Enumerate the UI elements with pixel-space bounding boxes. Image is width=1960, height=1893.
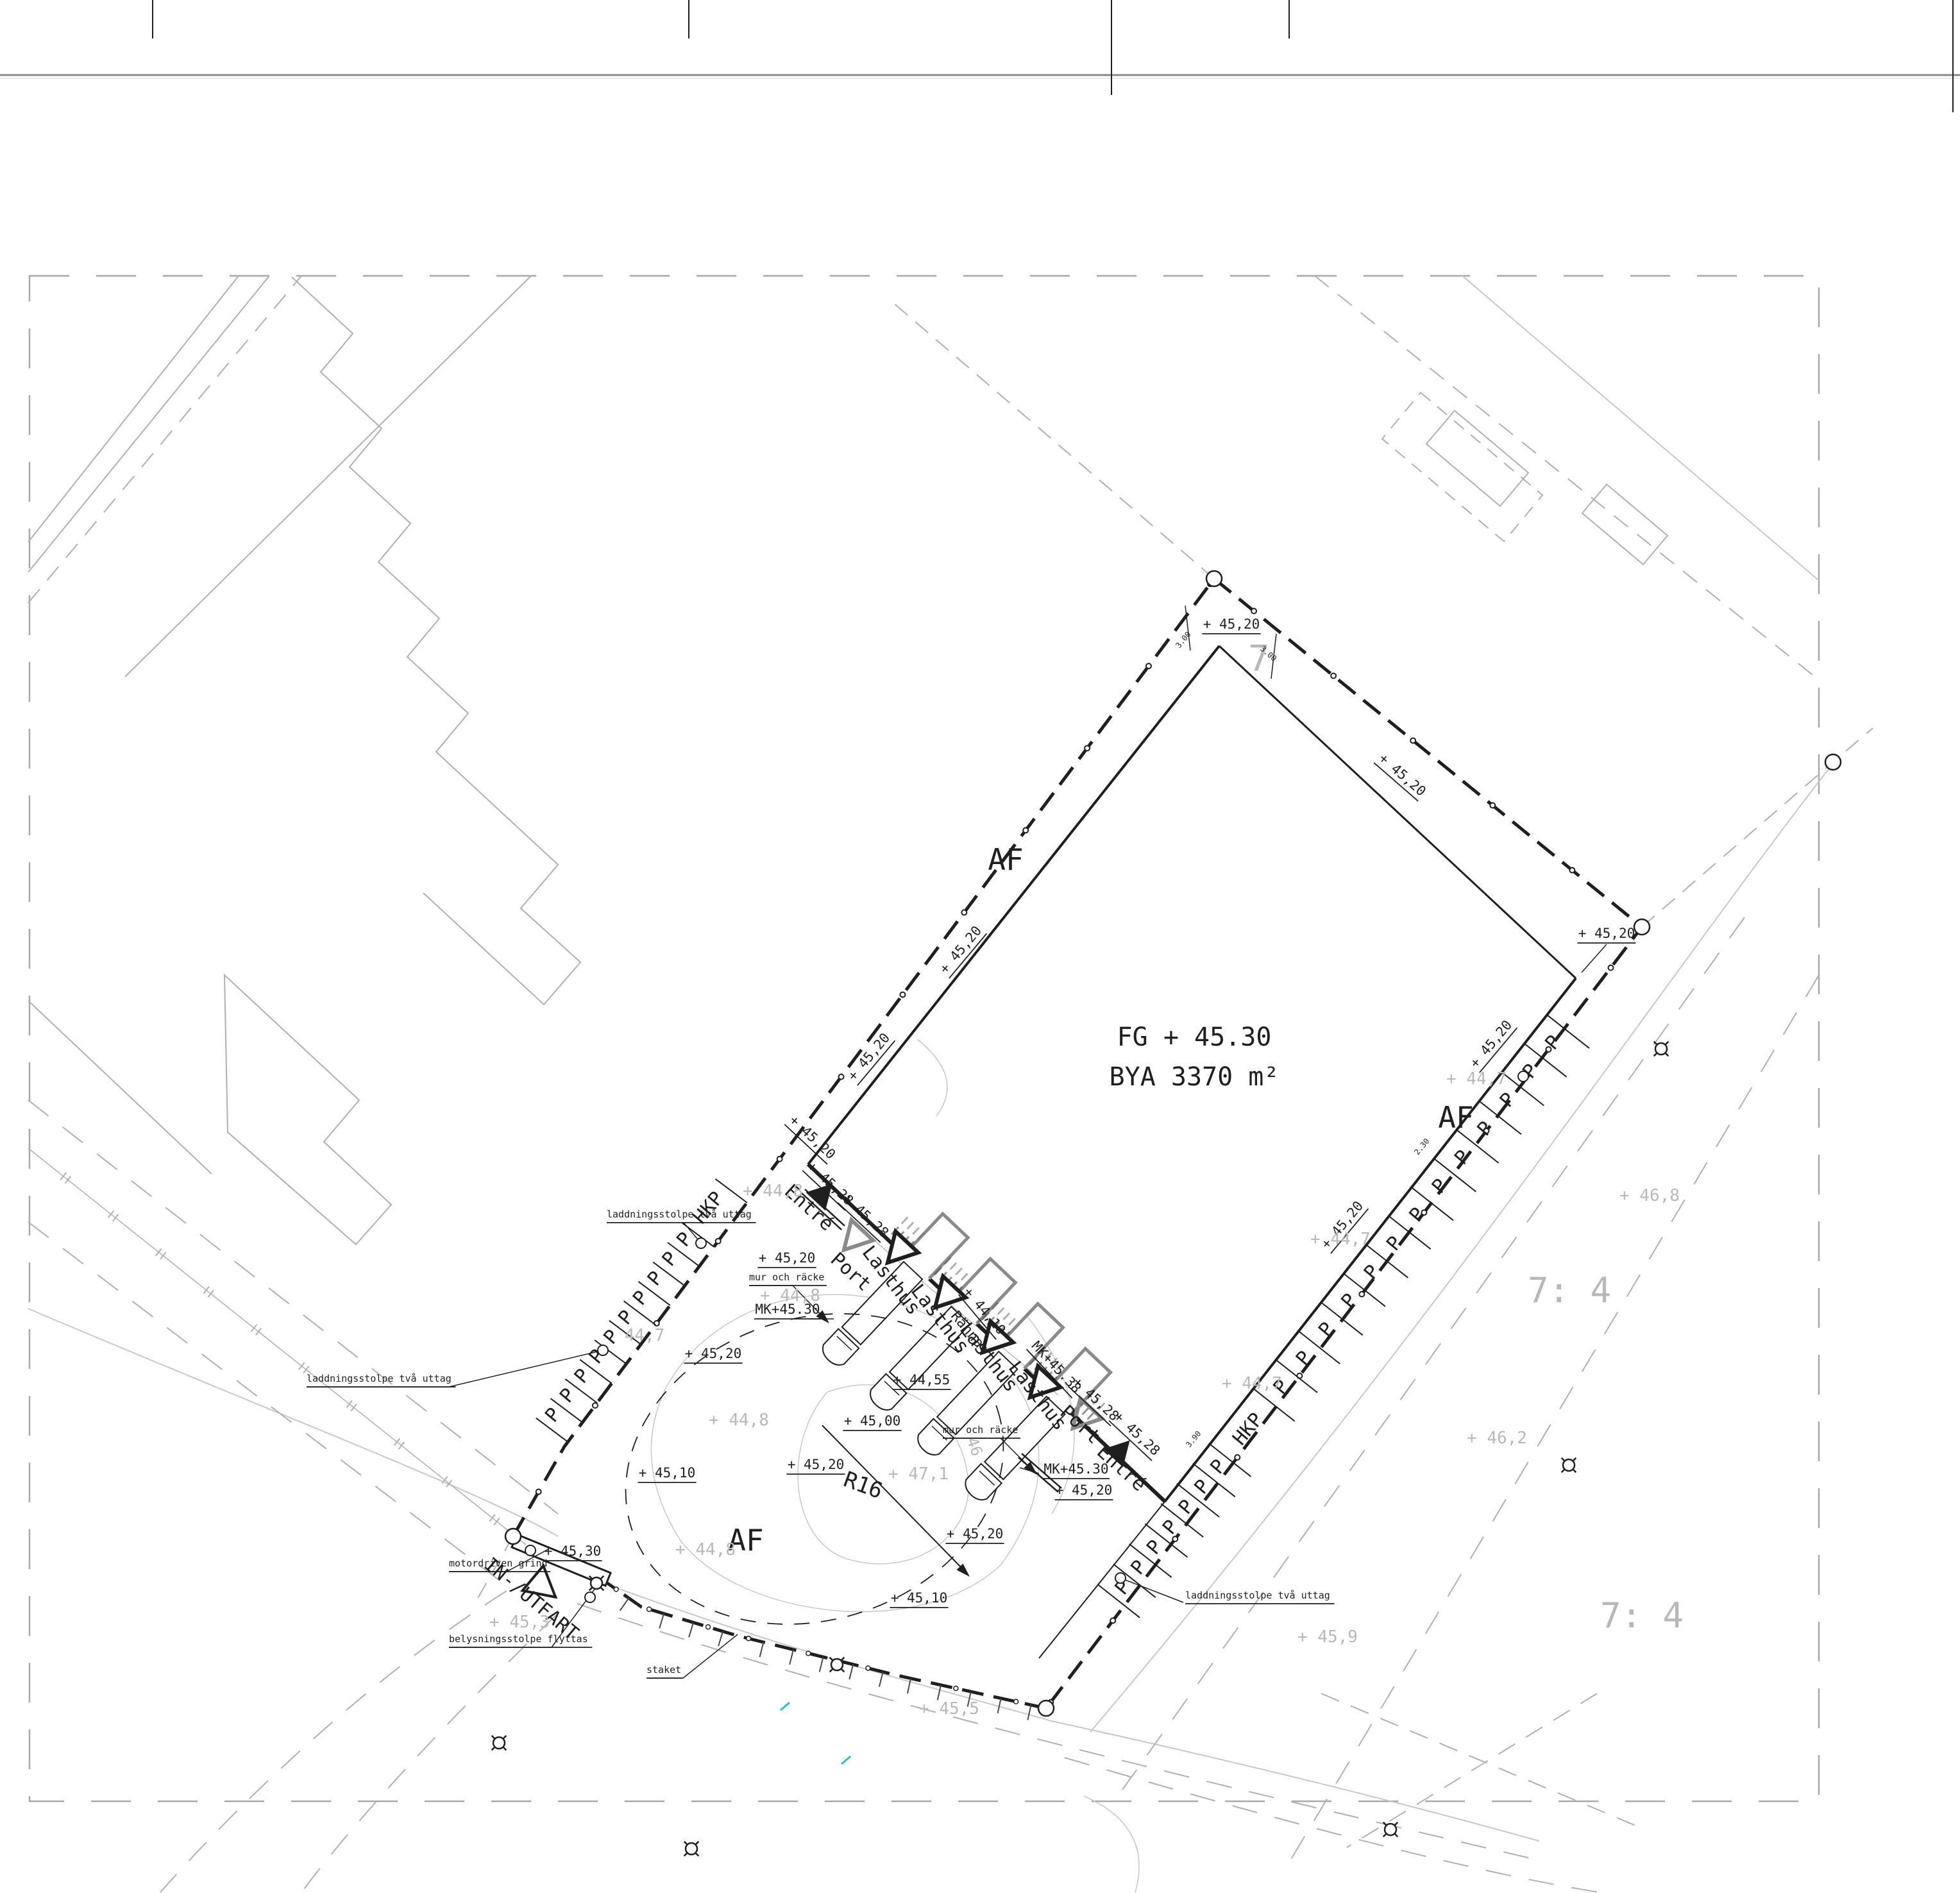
ground-45-5: + 45,5 bbox=[919, 1699, 979, 1719]
spot-45-20-s1: + 45,20 bbox=[1056, 1482, 1113, 1498]
ground-44-7-c: + 44,7 bbox=[1222, 1374, 1282, 1393]
boundary-ext-nw bbox=[890, 300, 1214, 579]
af-label-nw: AF bbox=[988, 842, 1023, 877]
survey-corner-circle bbox=[1206, 571, 1222, 586]
r16-label: R16 bbox=[840, 1466, 886, 1504]
boundary-post bbox=[1608, 965, 1613, 971]
survey-corner-circle bbox=[1634, 919, 1650, 935]
lamp-tick bbox=[600, 1576, 604, 1579]
bg-road-nw-2 bbox=[28, 276, 239, 542]
spot-45-20-w2-group: + 45,20 bbox=[684, 1346, 742, 1363]
lamp-tick bbox=[841, 1658, 844, 1661]
lamp-tick bbox=[1394, 1822, 1398, 1826]
spot-45-20-neb-group: + 45,20 bbox=[1374, 750, 1429, 801]
parking-right-slot-p: P bbox=[1142, 1536, 1167, 1559]
road-dash-2 bbox=[28, 1222, 513, 1591]
boundary-post bbox=[1146, 663, 1151, 668]
ground-44-8-c: + 44,8 bbox=[709, 1411, 769, 1430]
spot-45-00-group: + 45,00 bbox=[843, 1413, 901, 1430]
lamp-tick bbox=[492, 1736, 495, 1739]
bg-road-nw-dash bbox=[28, 276, 301, 603]
lamp-post-symbol bbox=[492, 1736, 507, 1751]
spot-45-20-e: + 45,20 bbox=[1578, 926, 1635, 941]
spot-45-20-n-group: + 45,20 bbox=[1202, 616, 1260, 634]
lamp-tick bbox=[1573, 1469, 1576, 1472]
lamp-tick bbox=[1383, 1822, 1387, 1826]
lamp-post-symbol bbox=[1562, 1458, 1576, 1473]
road-edge-sw-2 bbox=[616, 1588, 1052, 1721]
spot-45-20-e-group: + 45,20 bbox=[1577, 926, 1635, 943]
road-tick bbox=[203, 1287, 209, 1294]
road-tick bbox=[494, 1518, 500, 1525]
bg-road-nw-1 bbox=[28, 276, 269, 572]
spot-45-20-neb: + 45,20 bbox=[1376, 751, 1429, 799]
ground-45-9-group: + 45,9 bbox=[1297, 1627, 1358, 1647]
lamp-tick bbox=[684, 1842, 688, 1845]
survey-point-circle bbox=[585, 1592, 595, 1602]
fence-post bbox=[706, 1625, 711, 1629]
boundary-post bbox=[1490, 803, 1495, 808]
bg-dash-x1 bbox=[1321, 1694, 1642, 1828]
fence-tick bbox=[689, 1622, 693, 1637]
bg-building-lower bbox=[224, 975, 391, 1244]
fence-tick bbox=[659, 1614, 664, 1629]
road-tick bbox=[160, 1252, 166, 1259]
lamp-tick bbox=[841, 1668, 844, 1672]
ground-44-7-b: + 44,7 bbox=[1310, 1230, 1371, 1249]
survey-corner-circle bbox=[1825, 754, 1841, 770]
parking-right-slot-p: P bbox=[1450, 1146, 1474, 1169]
road-dash-1 bbox=[28, 1100, 558, 1514]
note-belysning: belysningsstolpe flyttas bbox=[449, 1633, 588, 1645]
lamp-circle bbox=[831, 1659, 843, 1670]
dim-2-30-group: 2.30 bbox=[1412, 1137, 1431, 1157]
lamp-circle bbox=[1563, 1459, 1575, 1471]
ground-46-8-group: + 46,8 bbox=[1619, 1186, 1680, 1205]
parcel-7-group: 7 bbox=[1248, 638, 1270, 680]
fence-post bbox=[806, 1651, 811, 1656]
contour-5 bbox=[1084, 1796, 1139, 1892]
lamp-post-symbol bbox=[1654, 1042, 1669, 1057]
lamp-tick bbox=[1562, 1458, 1565, 1461]
parking-right-slot-p: P bbox=[1206, 1456, 1230, 1479]
spot-45-20-seb: + 45,20 bbox=[1467, 1017, 1515, 1071]
spot-45-10-b-group: + 45,10 bbox=[890, 1590, 948, 1608]
parking-right-slot-p: P bbox=[1314, 1318, 1339, 1341]
road-dash-4 bbox=[301, 1613, 558, 1892]
parcel-7-4-a-group: 7: 4 bbox=[1528, 1270, 1611, 1311]
boundary-post bbox=[1023, 828, 1028, 833]
ground-44-7-d: + 44,7 bbox=[1446, 1069, 1507, 1089]
bg-line-ne bbox=[1462, 276, 1819, 581]
parking-right-slot-p: P bbox=[1292, 1346, 1316, 1370]
ground-44-7-a: 44,7 bbox=[625, 1326, 665, 1345]
dim-3-90-group: 3.90 bbox=[1184, 1429, 1203, 1449]
bg-line-left bbox=[28, 1001, 212, 1174]
af-label-se: AF bbox=[1438, 1100, 1473, 1135]
cyan-mark bbox=[781, 1702, 790, 1710]
spot-45-20-n: + 45,20 bbox=[1203, 616, 1260, 632]
mk-level-right: MK+45.30 bbox=[1043, 1461, 1108, 1477]
road-tick bbox=[299, 1362, 305, 1370]
dim-n-left bbox=[1185, 606, 1190, 650]
dock-hatch-2 bbox=[904, 1219, 922, 1235]
boundary-post bbox=[777, 1157, 782, 1162]
ground-46-2-group: + 46,2 bbox=[1467, 1429, 1527, 1448]
fence-tick bbox=[879, 1672, 883, 1686]
road-tick bbox=[489, 1515, 495, 1522]
spot-45-20-s1-group: + 45,20 bbox=[1054, 1482, 1113, 1500]
site-plan-sheet: HKPPPPPPPPPPPPPPPPPPPPPPPPHKPPPPPPPPFG +… bbox=[0, 0, 1960, 1893]
spot-45-20-s2-group: + 45,20 bbox=[945, 1526, 1004, 1543]
dock-ramp-1 bbox=[888, 1232, 918, 1263]
boundary-post bbox=[1085, 745, 1090, 751]
boundary-post bbox=[1110, 1618, 1115, 1623]
bg-building-stepped bbox=[292, 277, 580, 1005]
fence-tick bbox=[849, 1665, 853, 1679]
site-plan-drawing: HKPPPPPPPPPPPPPPPPPPPPPPPPHKPPPPPPPPFG +… bbox=[0, 0, 1960, 1893]
note-grind: motordriven grind bbox=[449, 1558, 548, 1569]
dim-3-90: 3.90 bbox=[1184, 1429, 1203, 1449]
building-bya-area-group: BYA 3370 m² bbox=[1110, 1062, 1280, 1092]
note-staket-group: staket bbox=[646, 1664, 682, 1678]
boundary-post bbox=[1359, 1291, 1364, 1296]
lamp-tick bbox=[1654, 1053, 1657, 1056]
survey-point-circle bbox=[1518, 1071, 1528, 1082]
lamp-tick bbox=[492, 1747, 495, 1750]
bg-rect-ne-1 bbox=[1426, 411, 1528, 506]
af-label-nw-group: AF bbox=[988, 842, 1023, 877]
fence-tick bbox=[620, 1598, 629, 1611]
fence-post bbox=[614, 1587, 618, 1592]
road-tick bbox=[399, 1442, 405, 1449]
parcel-7-4-b: 7: 4 bbox=[1600, 1595, 1684, 1636]
spot-45-20-w1-group: + 45,20 bbox=[757, 1250, 816, 1268]
lamp-tick bbox=[830, 1668, 833, 1672]
fence-tick bbox=[790, 1650, 793, 1665]
boundary-post bbox=[900, 992, 905, 997]
fence-post bbox=[954, 1686, 958, 1690]
note-belysning-group: belysningsstolpe flyttas bbox=[449, 1633, 592, 1647]
spot-45-10-a-group: + 45,10 bbox=[638, 1465, 696, 1482]
road-tick bbox=[65, 1176, 71, 1184]
contour-4 bbox=[917, 1039, 947, 1116]
spot-45-10-b: + 45,10 bbox=[891, 1590, 948, 1606]
parking-right-slot-p: P bbox=[1360, 1261, 1384, 1284]
ground-44-8-a-group: + 44,8 bbox=[743, 1182, 803, 1201]
road-edge-sw-1 bbox=[28, 1309, 558, 1536]
road-tick bbox=[351, 1404, 357, 1411]
lamp-circle bbox=[591, 1577, 602, 1589]
spot-45-00: + 45,00 bbox=[844, 1413, 901, 1429]
boundary-post bbox=[1410, 738, 1415, 743]
fence-post bbox=[647, 1607, 652, 1611]
ground-44-7-d-group: + 44,7 bbox=[1446, 1069, 1507, 1089]
road-dash-se-2 bbox=[1283, 975, 1819, 1873]
fence-tick bbox=[718, 1631, 723, 1646]
road-edge-se-1 bbox=[1090, 763, 1833, 1732]
road-tick bbox=[156, 1248, 162, 1255]
spot-45-10-a: + 45,10 bbox=[639, 1465, 696, 1481]
spot-45-20-s2: + 45,20 bbox=[947, 1526, 1004, 1541]
r16-label-group: R16 bbox=[840, 1466, 886, 1504]
spot-45-20-w1: + 45,20 bbox=[759, 1250, 816, 1266]
ground-44-8-b-group: + 44,8 bbox=[760, 1286, 820, 1305]
note-laddning-1: laddningsstolpe två uttag bbox=[607, 1209, 752, 1220]
fence-post bbox=[1014, 1699, 1018, 1704]
ground-44-8-b: + 44,8 bbox=[760, 1286, 820, 1305]
road-tick bbox=[108, 1210, 114, 1218]
lamp-circle bbox=[686, 1843, 697, 1855]
bg-road-long bbox=[125, 276, 531, 677]
fence-tick bbox=[938, 1685, 941, 1700]
lamp-tick bbox=[695, 1842, 698, 1845]
parking-right-slot-p: P bbox=[1337, 1289, 1361, 1312]
road-dash-6 bbox=[1065, 1758, 1603, 1893]
lamp-post-symbol bbox=[684, 1842, 699, 1856]
survey-corner-circle bbox=[1038, 1701, 1054, 1716]
boundary-fence-base bbox=[607, 1583, 1046, 1708]
lamp-circle bbox=[1385, 1824, 1396, 1835]
building-fg-level: FG + 45.30 bbox=[1117, 1023, 1272, 1052]
fence-post bbox=[747, 1636, 751, 1641]
parking-right-slot-p: P bbox=[1382, 1232, 1407, 1255]
note-laddning-2: laddningsstolpe två uttag bbox=[307, 1373, 452, 1384]
bg-dash-ne-1 bbox=[1315, 276, 1819, 680]
building-edge-ne bbox=[1219, 646, 1576, 978]
survey-corner-circle bbox=[505, 1529, 521, 1544]
spot-44-55-group: + 44,55 bbox=[892, 1372, 950, 1389]
ground-47-1-group: + 47,1 bbox=[888, 1464, 949, 1484]
lamp-circle bbox=[493, 1737, 505, 1749]
lamp-tick bbox=[503, 1736, 506, 1739]
spot-45-20-s3: + 45,20 bbox=[788, 1457, 845, 1472]
survey-point-circle bbox=[525, 1545, 536, 1556]
parcel-7-4-b-group: 7: 4 bbox=[1600, 1595, 1684, 1636]
parking-edge-extension bbox=[1039, 1502, 1165, 1658]
lamp-tick bbox=[1394, 1833, 1398, 1837]
ground-45-9: + 45,9 bbox=[1297, 1627, 1358, 1647]
parking-right-slot-p: P bbox=[1190, 1475, 1214, 1498]
lamp-tick bbox=[1573, 1458, 1576, 1461]
boundary-post bbox=[1331, 674, 1336, 679]
building-bya-area: BYA 3370 m² bbox=[1110, 1062, 1280, 1092]
mk-level-right-group: MK+45.30 bbox=[1043, 1461, 1110, 1479]
lamp-tick bbox=[1562, 1469, 1565, 1472]
fence-tick bbox=[760, 1642, 764, 1657]
parking-right-slot-p: P bbox=[1473, 1117, 1497, 1141]
parcel-7: 7 bbox=[1248, 638, 1270, 680]
road-tick bbox=[256, 1328, 262, 1335]
survey-point-circle bbox=[696, 1238, 706, 1248]
road-tick bbox=[251, 1325, 257, 1332]
boundary-post bbox=[716, 1239, 721, 1244]
lamp-tick bbox=[830, 1658, 833, 1661]
ground-46-8: + 46,8 bbox=[1619, 1186, 1680, 1205]
ground-46-2: + 46,2 bbox=[1467, 1429, 1527, 1448]
ground-45-5-group: + 45,5 bbox=[919, 1699, 979, 1719]
leader-e-corner bbox=[1582, 944, 1607, 972]
lamp-tick bbox=[1383, 1833, 1387, 1837]
bg-rect-dash bbox=[1382, 393, 1542, 541]
lamp-tick bbox=[1665, 1053, 1668, 1056]
lamp-tick bbox=[695, 1853, 698, 1856]
road-tick bbox=[303, 1366, 309, 1373]
ground-44-8-d-group: + 44,8 bbox=[675, 1540, 736, 1559]
fence-tick bbox=[820, 1657, 824, 1672]
note-laddning-2-group: laddningsstolpe två uttag bbox=[307, 1373, 456, 1387]
note-laddning-3-group: laddningsstolpe två uttag bbox=[1185, 1590, 1335, 1604]
lamp-post-symbol bbox=[589, 1576, 604, 1591]
dim-2-30: 2.30 bbox=[1412, 1137, 1431, 1157]
cyan-mark bbox=[841, 1756, 850, 1764]
spot-45-30-gate-group: + 45,30 bbox=[543, 1543, 602, 1561]
fence-tick bbox=[1027, 1705, 1031, 1720]
spot-44-55: + 44,55 bbox=[893, 1372, 950, 1388]
lamp-tick bbox=[600, 1587, 604, 1590]
building-fg-level-group: FG + 45.30 bbox=[1117, 1023, 1272, 1052]
lamp-post-symbol bbox=[830, 1658, 845, 1672]
boundary-post bbox=[593, 1403, 598, 1408]
road-tick bbox=[60, 1173, 66, 1180]
ground-44-7-c-group: + 44,7 bbox=[1222, 1374, 1282, 1393]
ground-44-8-c-group: + 44,8 bbox=[709, 1411, 769, 1430]
road-tick bbox=[346, 1400, 352, 1407]
spot-45-30-gate: + 45,30 bbox=[545, 1543, 602, 1559]
ground-44-7-b-group: + 44,7 bbox=[1310, 1230, 1371, 1249]
note-mur-left: mur och räcke bbox=[749, 1271, 824, 1283]
note-laddning-3: laddningsstolpe två uttag bbox=[1185, 1590, 1330, 1601]
boundary-post bbox=[1569, 868, 1575, 873]
parking-right-slot-p: P bbox=[1405, 1203, 1429, 1227]
ground-47-1: + 47,1 bbox=[888, 1464, 949, 1484]
fence-post bbox=[866, 1666, 870, 1670]
note-staket: staket bbox=[646, 1664, 681, 1676]
road-dash-5 bbox=[577, 1604, 1539, 1860]
ground-44-7-a-group: 44,7 bbox=[625, 1326, 665, 1345]
spot-45-20-w2: + 45,20 bbox=[685, 1346, 742, 1361]
lamp-tick bbox=[503, 1747, 506, 1750]
boundary-post bbox=[961, 910, 967, 915]
road-centerline bbox=[28, 1148, 526, 1545]
ground-45-3-group: + 45,3 bbox=[489, 1613, 550, 1632]
lamp-post-symbol bbox=[1383, 1822, 1398, 1837]
lamp-tick bbox=[589, 1587, 593, 1590]
boundary-post bbox=[1235, 1455, 1240, 1460]
road-tick bbox=[113, 1214, 119, 1221]
spot-45-20-wcorner-group: + 45,20 bbox=[784, 1112, 839, 1164]
boundary-post bbox=[536, 1490, 541, 1495]
ground-44-8-d: + 44,8 bbox=[675, 1540, 736, 1559]
parking-edge-top bbox=[1547, 978, 1576, 1015]
road-tick bbox=[208, 1290, 214, 1297]
boundary-post bbox=[839, 1074, 844, 1080]
ground-44-8-a: + 44,8 bbox=[743, 1182, 803, 1201]
parcel-7-4-a: 7: 4 bbox=[1528, 1270, 1611, 1311]
lamp-tick bbox=[1665, 1042, 1668, 1045]
ground-45-3: + 45,3 bbox=[489, 1613, 550, 1632]
lamp-circle bbox=[1655, 1043, 1667, 1055]
lamp-tick bbox=[684, 1853, 688, 1856]
note-mur-right: mur och räcke bbox=[943, 1424, 1018, 1436]
boundary-post bbox=[1251, 609, 1256, 614]
af-label-se-group: AF bbox=[1438, 1100, 1473, 1135]
survey-point-circle bbox=[598, 1345, 608, 1355]
note-mur-left-group: mur och räcke bbox=[749, 1271, 827, 1286]
survey-point-circle bbox=[1115, 1573, 1126, 1583]
road-tick bbox=[394, 1438, 400, 1445]
spot-45-20-s3-group: + 45,20 bbox=[786, 1457, 845, 1474]
